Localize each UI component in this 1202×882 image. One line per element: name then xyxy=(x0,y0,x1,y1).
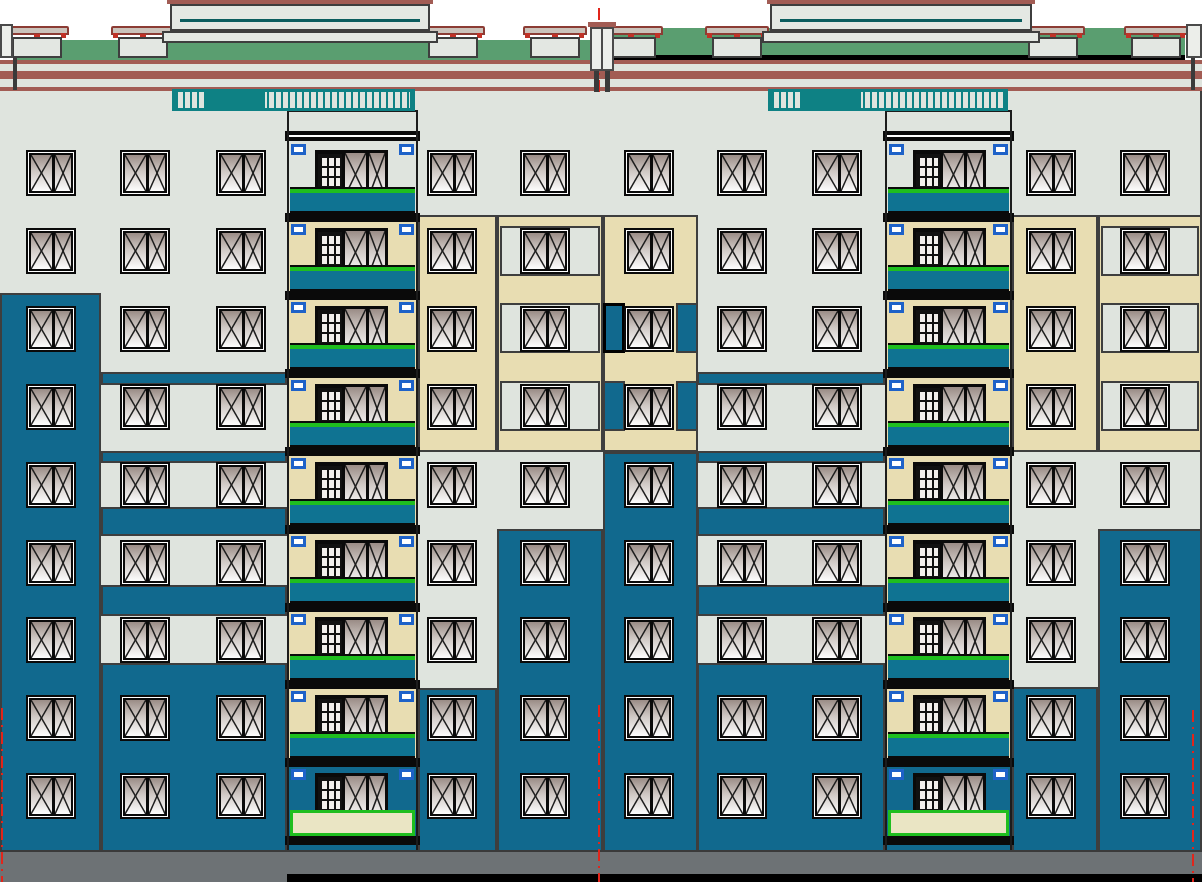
window-pane xyxy=(55,311,71,347)
railing-solid-panel xyxy=(206,91,264,109)
window-pane xyxy=(245,622,261,658)
window-pane xyxy=(629,389,650,425)
window-pane xyxy=(125,233,146,269)
window-pane xyxy=(55,389,71,425)
window-pane xyxy=(221,311,242,347)
window-sash xyxy=(626,464,672,506)
window-pane xyxy=(221,467,242,503)
window xyxy=(216,462,266,508)
axis-line xyxy=(1,708,3,882)
window-pane xyxy=(432,778,453,814)
roof-vent-body xyxy=(118,37,168,58)
floor-slab xyxy=(883,369,1014,378)
balcony-column-edge xyxy=(885,110,887,852)
window-pane xyxy=(525,233,546,269)
window xyxy=(624,228,674,274)
window-sash xyxy=(1028,619,1074,661)
anchor-clip xyxy=(291,691,306,702)
railing-post xyxy=(768,89,773,111)
floor-slab xyxy=(285,131,420,141)
anchor-clip xyxy=(993,614,1008,625)
window-pane xyxy=(746,700,762,736)
window-pane xyxy=(1125,545,1146,581)
window-pane xyxy=(31,622,52,658)
window-pane xyxy=(31,467,52,503)
anchor-clip xyxy=(291,302,306,313)
window xyxy=(216,384,266,430)
window xyxy=(624,617,674,663)
floor-slab xyxy=(285,836,420,845)
window-sash xyxy=(626,775,672,817)
window-sash xyxy=(122,308,168,350)
window-pane xyxy=(1031,311,1052,347)
railing-top-rail xyxy=(172,89,415,92)
window xyxy=(520,150,570,196)
window-pane xyxy=(841,311,857,347)
window-sash xyxy=(218,542,264,584)
window-sash xyxy=(522,230,568,272)
window-sash xyxy=(218,152,264,194)
window xyxy=(427,306,477,352)
window-sash xyxy=(1028,230,1074,272)
anchor-clip xyxy=(399,769,414,780)
window xyxy=(1026,150,1076,196)
window-sash xyxy=(626,308,672,350)
window-pane xyxy=(55,545,71,581)
anchor-clip xyxy=(291,614,306,625)
window-pane xyxy=(149,311,165,347)
anchor-clip xyxy=(889,224,904,235)
window xyxy=(26,150,76,196)
window-pane xyxy=(629,778,650,814)
window xyxy=(120,462,170,508)
floor-slab xyxy=(883,131,1014,141)
window-sash xyxy=(814,619,860,661)
window-pane xyxy=(653,545,669,581)
railing-post xyxy=(410,89,415,111)
window-pane xyxy=(1149,155,1165,191)
anchor-clip xyxy=(399,224,414,235)
window xyxy=(427,384,477,430)
balcony-column-edge xyxy=(416,110,418,852)
window-pane xyxy=(841,778,857,814)
railing-solid-panel xyxy=(802,91,860,109)
window-sash xyxy=(814,697,860,739)
teal-facade-panel xyxy=(101,585,287,616)
window xyxy=(520,384,570,430)
window xyxy=(216,150,266,196)
window-sash xyxy=(522,697,568,739)
floor-slab xyxy=(285,291,420,300)
window-pane xyxy=(817,622,838,658)
edge-post-leg xyxy=(13,58,17,90)
window-pane xyxy=(1125,622,1146,658)
window xyxy=(1026,228,1076,274)
window-pane xyxy=(746,155,762,191)
anchor-clip xyxy=(399,614,414,625)
balcony-railing xyxy=(290,810,415,836)
floor-slab xyxy=(883,680,1014,689)
floor-slab xyxy=(285,213,420,222)
teal-facade-panel xyxy=(676,303,698,353)
window xyxy=(624,540,674,586)
railing-bottom-rail xyxy=(172,108,415,111)
window-pane xyxy=(31,545,52,581)
window-pane xyxy=(1031,389,1052,425)
window-sash xyxy=(814,464,860,506)
railing-post xyxy=(172,89,177,111)
window-sash xyxy=(218,386,264,428)
window-sash xyxy=(1122,464,1168,506)
window xyxy=(812,150,862,196)
window xyxy=(216,306,266,352)
window xyxy=(1120,150,1170,196)
window xyxy=(812,695,862,741)
window xyxy=(520,462,570,508)
window-pane xyxy=(746,622,762,658)
window-pane xyxy=(1149,622,1165,658)
anchor-clip xyxy=(889,614,904,625)
window-pane xyxy=(841,467,857,503)
window-sash xyxy=(1028,152,1074,194)
floor-slab xyxy=(883,291,1014,300)
anchor-clip xyxy=(993,691,1008,702)
window-pane xyxy=(653,233,669,269)
window-pane xyxy=(841,389,857,425)
window-pane xyxy=(1055,389,1071,425)
window-sash xyxy=(1028,542,1074,584)
stair-bulkhead-body xyxy=(170,4,430,31)
window xyxy=(812,540,862,586)
window-pane xyxy=(746,233,762,269)
window xyxy=(812,384,862,430)
window xyxy=(717,306,767,352)
window-pane xyxy=(432,311,453,347)
window xyxy=(26,462,76,508)
window xyxy=(717,462,767,508)
balcony-railing xyxy=(888,732,1009,758)
window xyxy=(216,617,266,663)
window-pane xyxy=(456,700,472,736)
window xyxy=(1120,540,1170,586)
window-pane xyxy=(55,155,71,191)
balcony-railing xyxy=(888,499,1009,525)
window xyxy=(26,306,76,352)
window-pane xyxy=(722,233,743,269)
window-pane xyxy=(525,311,546,347)
window-pane xyxy=(1031,778,1052,814)
window-pane xyxy=(221,389,242,425)
window-pane xyxy=(841,545,857,581)
balcony-railing xyxy=(290,421,415,447)
balcony-railing xyxy=(290,654,415,680)
window-pane xyxy=(55,467,71,503)
window-pane xyxy=(1031,233,1052,269)
window-pane xyxy=(1031,155,1052,191)
window-pane xyxy=(1125,467,1146,503)
stair-bulkhead-teal-line xyxy=(780,19,1022,22)
balcony-railing xyxy=(888,654,1009,680)
window-pane xyxy=(125,389,146,425)
window-pane xyxy=(653,700,669,736)
axis-line xyxy=(1192,710,1194,882)
window-pane xyxy=(549,545,565,581)
window-pane xyxy=(456,155,472,191)
window xyxy=(427,228,477,274)
window-sash xyxy=(122,775,168,817)
window-sash xyxy=(28,386,74,428)
balcony-railing xyxy=(888,577,1009,603)
window xyxy=(812,228,862,274)
window-pane xyxy=(245,700,261,736)
floor-slab xyxy=(285,603,420,612)
anchor-clip xyxy=(889,458,904,469)
window xyxy=(717,228,767,274)
window-pane xyxy=(549,155,565,191)
window-sash xyxy=(626,697,672,739)
window-pane xyxy=(221,778,242,814)
window-pane xyxy=(1149,778,1165,814)
window-sash xyxy=(429,775,475,817)
window-sash xyxy=(1028,775,1074,817)
window-sash xyxy=(122,542,168,584)
window-sash xyxy=(1122,152,1168,194)
window xyxy=(120,540,170,586)
window-sash xyxy=(1122,230,1168,272)
window-pane xyxy=(629,622,650,658)
window xyxy=(812,306,862,352)
anchor-clip xyxy=(993,380,1008,391)
parapet-railing xyxy=(768,89,1008,111)
window-sash xyxy=(1028,386,1074,428)
window xyxy=(120,695,170,741)
stair-bulkhead-teal-line xyxy=(180,19,420,22)
window-pane xyxy=(525,545,546,581)
window xyxy=(624,695,674,741)
window-sash xyxy=(1122,775,1168,817)
window-pane xyxy=(125,545,146,581)
window xyxy=(120,384,170,430)
anchor-clip xyxy=(889,769,904,780)
floor-slab xyxy=(285,525,420,534)
window-sash xyxy=(522,386,568,428)
window-pane xyxy=(525,622,546,658)
window xyxy=(1026,617,1076,663)
window xyxy=(427,540,477,586)
window-sash xyxy=(626,230,672,272)
window-pane xyxy=(525,155,546,191)
window-sash xyxy=(1028,308,1074,350)
window-pane xyxy=(55,778,71,814)
window-pane xyxy=(125,467,146,503)
window-pane xyxy=(456,622,472,658)
window xyxy=(624,462,674,508)
window-pane xyxy=(221,545,242,581)
window-sash xyxy=(522,775,568,817)
anchor-clip xyxy=(993,536,1008,547)
balcony-column-edge xyxy=(1010,110,1012,852)
window-pane xyxy=(55,700,71,736)
railing-post xyxy=(856,89,861,111)
balcony-railing xyxy=(888,421,1009,447)
window-pane xyxy=(149,778,165,814)
floor-slab xyxy=(285,680,420,689)
window-pane xyxy=(245,155,261,191)
window-pane xyxy=(1031,622,1052,658)
balcony-column-edge xyxy=(287,110,289,852)
window-pane xyxy=(722,545,743,581)
window-pane xyxy=(525,389,546,425)
window-pane xyxy=(245,467,261,503)
anchor-clip xyxy=(291,380,306,391)
window xyxy=(120,306,170,352)
balcony-railing xyxy=(290,732,415,758)
anchor-clip xyxy=(399,380,414,391)
window-pane xyxy=(629,700,650,736)
window-sash xyxy=(814,542,860,584)
anchor-clip xyxy=(993,144,1008,155)
anchor-clip xyxy=(889,302,904,313)
window-pane xyxy=(432,700,453,736)
window-pane xyxy=(746,545,762,581)
window-sash xyxy=(1028,464,1074,506)
window-pane xyxy=(722,622,743,658)
balcony-railing xyxy=(290,577,415,603)
window-pane xyxy=(149,700,165,736)
stair-bulkhead-body xyxy=(770,4,1032,31)
window-pane xyxy=(653,311,669,347)
window-sash xyxy=(626,619,672,661)
window xyxy=(216,773,266,819)
anchor-clip xyxy=(399,144,414,155)
roof-vent-body xyxy=(12,37,62,58)
window-pane xyxy=(456,389,472,425)
window-sash xyxy=(122,386,168,428)
railing-post xyxy=(260,89,265,111)
window-sash xyxy=(122,230,168,272)
window-sash xyxy=(719,308,765,350)
window-pane xyxy=(31,233,52,269)
window-sash xyxy=(28,697,74,739)
window-pane xyxy=(456,778,472,814)
window-sash xyxy=(28,542,74,584)
anchor-clip xyxy=(993,224,1008,235)
window-pane xyxy=(1125,311,1146,347)
window-sash xyxy=(626,542,672,584)
anchor-clip xyxy=(993,302,1008,313)
window-pane xyxy=(1149,545,1165,581)
floor-slab xyxy=(285,447,420,456)
window-sash xyxy=(28,619,74,661)
stair-bulkhead-step xyxy=(762,31,1040,43)
window-pane xyxy=(549,467,565,503)
window xyxy=(1026,695,1076,741)
window-sash xyxy=(814,152,860,194)
balcony-railing xyxy=(888,265,1009,291)
window-pane xyxy=(1055,467,1071,503)
window-pane xyxy=(456,233,472,269)
window-sash xyxy=(429,619,475,661)
window xyxy=(520,773,570,819)
window-sash xyxy=(719,775,765,817)
window-pane xyxy=(432,467,453,503)
window xyxy=(26,228,76,274)
window-sash xyxy=(1122,619,1168,661)
window-pane xyxy=(722,700,743,736)
window xyxy=(26,773,76,819)
balcony-railing xyxy=(290,265,415,291)
window-pane xyxy=(1055,545,1071,581)
window-sash xyxy=(429,464,475,506)
window-pane xyxy=(1149,389,1165,425)
window-sash xyxy=(122,464,168,506)
window xyxy=(717,773,767,819)
window-pane xyxy=(549,233,565,269)
window-pane xyxy=(549,311,565,347)
window xyxy=(812,462,862,508)
window xyxy=(624,384,674,430)
window-pane xyxy=(221,155,242,191)
window-pane xyxy=(817,700,838,736)
window xyxy=(427,695,477,741)
window-pane xyxy=(549,389,565,425)
anchor-clip xyxy=(399,536,414,547)
window-sash xyxy=(719,697,765,739)
window-pane xyxy=(31,311,52,347)
window-pane xyxy=(841,700,857,736)
anchor-clip xyxy=(889,380,904,391)
edge-post xyxy=(1186,24,1202,58)
window-sash xyxy=(719,619,765,661)
window-pane xyxy=(1055,233,1071,269)
roof-green-band xyxy=(13,40,598,60)
window-pane xyxy=(1149,467,1165,503)
anchor-clip xyxy=(889,691,904,702)
window xyxy=(624,150,674,196)
window-pane xyxy=(1125,778,1146,814)
window-pane xyxy=(817,389,838,425)
window xyxy=(717,150,767,196)
window-sash xyxy=(218,697,264,739)
window-sash xyxy=(719,464,765,506)
window xyxy=(717,617,767,663)
teal-facade-panel xyxy=(603,381,625,431)
balcony-railing xyxy=(888,343,1009,369)
window-pane xyxy=(841,622,857,658)
anchor-clip xyxy=(993,458,1008,469)
edge-post xyxy=(0,24,13,58)
roof-vent-body xyxy=(530,37,580,58)
anchor-clip xyxy=(889,144,904,155)
center-chimney-leg xyxy=(605,71,610,92)
anchor-clip xyxy=(291,224,306,235)
window-pane xyxy=(1031,545,1052,581)
window-sash xyxy=(218,464,264,506)
window-pane xyxy=(549,700,565,736)
window-pane xyxy=(817,311,838,347)
window-pane xyxy=(31,778,52,814)
window-pane xyxy=(149,545,165,581)
window-sash xyxy=(429,386,475,428)
balcony-railing xyxy=(888,810,1009,836)
center-chimney-leg xyxy=(594,71,599,92)
window-sash xyxy=(429,542,475,584)
roof-vent-body xyxy=(712,37,762,58)
window-sash xyxy=(218,308,264,350)
window-pane xyxy=(432,622,453,658)
ground-line xyxy=(287,874,1202,882)
window-pane xyxy=(1055,622,1071,658)
